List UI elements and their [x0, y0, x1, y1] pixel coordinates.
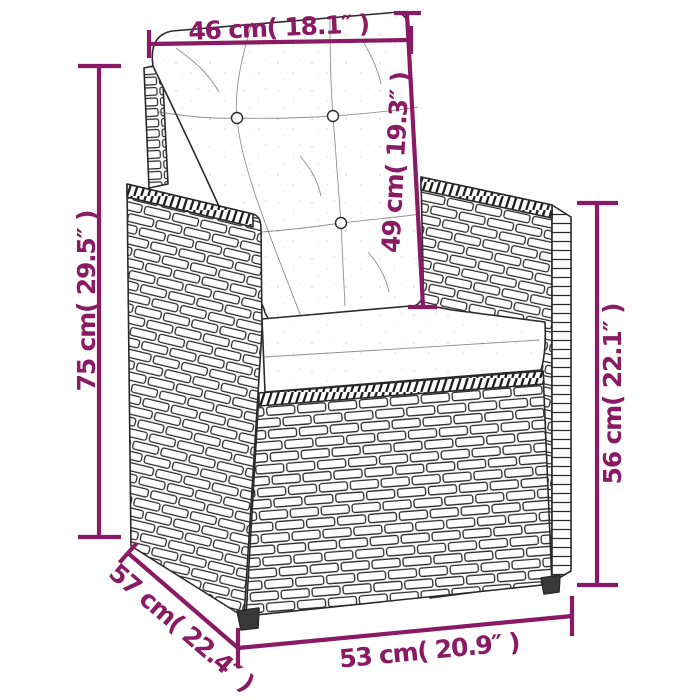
diagram-canvas: 46 cm( 18.1″ ) 49 cm( 19.3″ ) 75 cm( 29.… — [0, 0, 700, 700]
armchair-dimension-diagram: 46 cm( 18.1″ ) 49 cm( 19.3″ ) 75 cm( 29.… — [0, 0, 700, 700]
dimension-label-armrest-height: 56 cm( 22.1″ ) — [598, 304, 627, 485]
right-side-edge — [552, 205, 571, 582]
left-armrest-panel — [127, 184, 262, 617]
tuft-button — [336, 218, 347, 229]
front-base-panel — [246, 371, 552, 616]
tuft-button — [328, 111, 339, 122]
dimension-label-overall-height: 75 cm( 29.5″ ) — [72, 211, 101, 392]
right-foot — [541, 575, 560, 594]
left-foot — [237, 608, 259, 630]
armchair-illustration — [127, 13, 571, 630]
tuft-button — [232, 113, 243, 124]
